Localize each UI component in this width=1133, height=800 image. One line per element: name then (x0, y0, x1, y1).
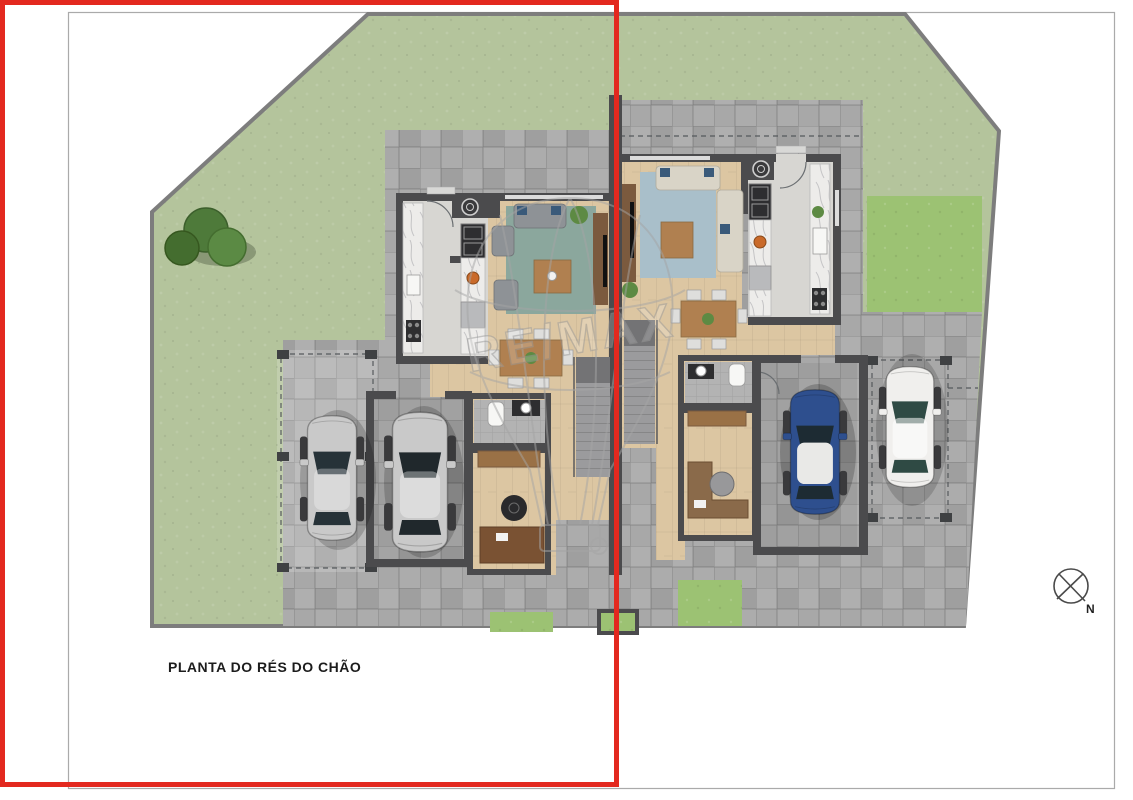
rear-lawn-patch-left (490, 612, 553, 632)
plan-title: PLANTA DO RÉS DO CHÃO (168, 658, 361, 675)
rear-lawn-patch-right (678, 580, 742, 626)
burner (415, 334, 419, 338)
dining-chair (712, 290, 726, 300)
car-silver-garage (384, 406, 464, 558)
office-sideboard-right (688, 411, 746, 426)
tv-left (603, 235, 607, 287)
wc-sink-right (696, 366, 706, 376)
cushion (720, 224, 730, 234)
car-white-outdoor (876, 354, 948, 506)
entry-step-right (776, 146, 806, 153)
floor-plan-page: RE/MAX N PLANTA DO RÉS DO CHÃO (0, 0, 1133, 800)
staircase-left (574, 357, 610, 477)
island-base-right (749, 290, 771, 316)
cushion (660, 168, 670, 177)
side-yard-lawn (867, 196, 982, 312)
burner (408, 323, 412, 327)
burner (814, 291, 818, 295)
kitchen-sink-left (407, 275, 420, 295)
office-sideboard-left (478, 451, 540, 467)
dishwasher-right (749, 266, 771, 290)
desk-papers-right (694, 500, 706, 508)
wall-stub-kitchen (450, 256, 462, 263)
toilet-left (488, 402, 504, 426)
living-window-right (630, 156, 710, 160)
office-chair-right (710, 472, 734, 496)
burner (821, 302, 825, 306)
desk-papers (496, 533, 508, 541)
food-plate-right (754, 236, 766, 248)
kitchen-sink-right (813, 228, 827, 254)
counter-herbs (812, 206, 824, 218)
car-blue-carport (780, 384, 856, 520)
kitchen-window-right (835, 190, 839, 226)
toilet-right (729, 364, 745, 386)
wall-kitchen-south-right (748, 317, 841, 325)
cooktop-right (812, 288, 827, 310)
wall-kitchen-east (833, 154, 841, 324)
cooktop-left (406, 320, 421, 342)
burner (415, 323, 419, 327)
north-label: N (1086, 602, 1095, 616)
wall-kitchen-west (396, 200, 403, 363)
dining-chair (712, 339, 726, 349)
dining-chair (687, 339, 701, 349)
washer-icon (462, 199, 478, 215)
floor-plan-canvas: RE/MAX N PLANTA DO RÉS DO CHÃO (0, 0, 1133, 800)
dining-chair (534, 378, 549, 388)
burner (821, 291, 825, 295)
dining-chair (738, 309, 747, 323)
car-silver-outdoor (300, 410, 376, 550)
office-chair-left (501, 495, 527, 521)
cushion (551, 206, 561, 215)
office-desk-left (480, 527, 544, 563)
entry-opening-right (776, 154, 806, 162)
entry-step-left (427, 187, 455, 194)
oven-stack-left (461, 224, 485, 258)
washer-icon-right (753, 161, 769, 177)
burner (814, 302, 818, 306)
dishwasher-left (461, 302, 485, 328)
coffee-table-right (661, 222, 693, 258)
cushion (704, 168, 714, 177)
burner (408, 334, 412, 338)
dining-chair (687, 290, 701, 300)
dining-plant-right (702, 313, 714, 325)
